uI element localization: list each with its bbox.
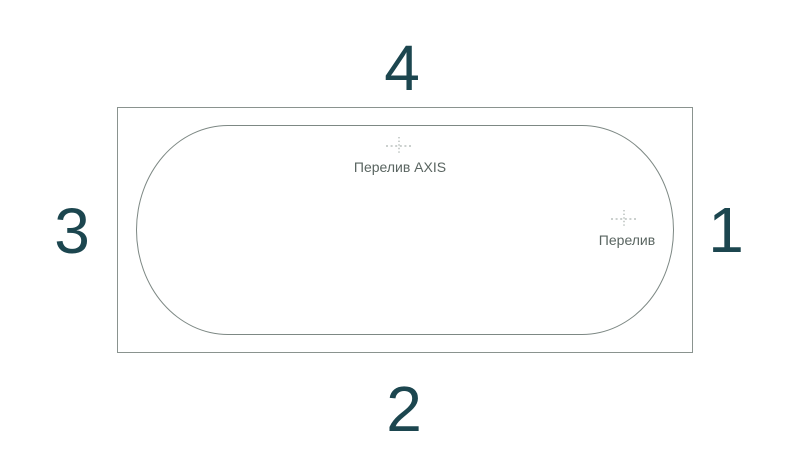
overflow-label: Перелив — [599, 233, 655, 247]
bathtub-top-view-scheme: 4 2 3 1 Перелив AXIS Перелив — [0, 0, 800, 464]
overflow-axis-crosshair-icon — [386, 137, 412, 155]
side-number-right: 1 — [708, 198, 744, 262]
overflow-axis-label: Перелив AXIS — [354, 160, 446, 174]
side-number-bottom: 2 — [386, 377, 422, 441]
bathtub-inner-bowl — [136, 125, 674, 335]
overflow-crosshair-icon — [611, 210, 637, 228]
side-number-top: 4 — [384, 36, 420, 100]
side-number-left: 3 — [54, 199, 90, 263]
